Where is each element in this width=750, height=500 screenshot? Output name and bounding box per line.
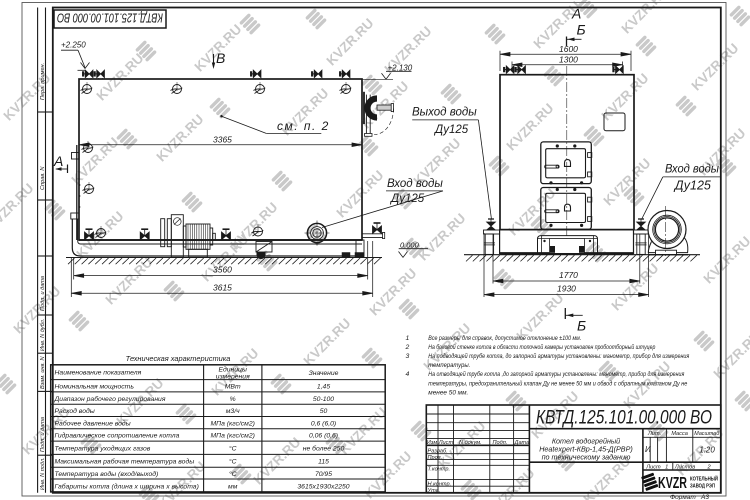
- svg-text:N докум.: N докум.: [459, 440, 482, 446]
- svg-text:Температура воды (вход/выход): Температура воды (вход/выход): [55, 470, 159, 478]
- svg-text:температуры, предохранительный: температуры, предохранительный клапан Ду…: [428, 379, 687, 387]
- svg-text:Масштаб: Масштаб: [694, 431, 720, 437]
- svg-text:Рабочее давление воды: Рабочее давление воды: [55, 419, 131, 427]
- svg-text:1770: 1770: [559, 270, 578, 280]
- svg-text:1:20: 1:20: [699, 446, 715, 455]
- svg-text:1300: 1300: [559, 55, 578, 65]
- svg-text:0,06 (0,6): 0,06 (0,6): [309, 433, 338, 440]
- svg-text:Ду125: Ду125: [389, 193, 425, 205]
- svg-text:менее 50 мм.: менее 50 мм.: [428, 390, 468, 397]
- svg-text:Максимальная рабочая температу: Максимальная рабочая температура воды: [55, 458, 195, 466]
- svg-text:Листов: Листов: [674, 464, 695, 470]
- svg-text:Изм.Лист: Изм.Лист: [427, 440, 454, 446]
- svg-text:КВТД.125.101.00.000 ВО: КВТД.125.101.00.000 ВО: [536, 408, 712, 429]
- svg-text:И: И: [645, 445, 651, 454]
- svg-text:Справ. N: Справ. N: [40, 166, 46, 190]
- svg-text:Б: Б: [577, 318, 586, 334]
- svg-text:Расход воды: Расход воды: [55, 407, 95, 415]
- svg-text:Габариты котла (длина х ширина: Габариты котла (длина х ширина х высота): [55, 483, 199, 491]
- svg-text:Инв. N подл.: Инв. N подл.: [40, 457, 46, 490]
- svg-text:На отводящей трубе котла ,до з: На отводящей трубе котла ,до запорной ар…: [428, 370, 684, 378]
- svg-text:Н.контр.: Н.контр.: [428, 481, 452, 487]
- svg-text:Вход воды: Вход воды: [387, 178, 443, 190]
- svg-text:1600: 1600: [559, 44, 578, 54]
- svg-text:Т.контр.: Т.контр.: [428, 467, 451, 473]
- svg-text:1: 1: [665, 464, 668, 470]
- svg-text:м3/ч: м3/ч: [226, 408, 240, 415]
- svg-text:Инв. N дубл.: Инв. N дубл.: [40, 319, 46, 351]
- svg-text:115: 115: [318, 459, 329, 466]
- svg-text:Масса: Масса: [671, 431, 688, 437]
- svg-text:Диапазон рабочего регулировани: Диапазон рабочего регулирования: [54, 395, 166, 403]
- svg-text:1930: 1930: [557, 284, 576, 294]
- svg-text:Дата: Дата: [514, 440, 530, 446]
- svg-text:Наименование показателя: Наименование показателя: [55, 370, 142, 377]
- svg-text:2: 2: [405, 344, 410, 351]
- svg-text:Разраб.: Разраб.: [428, 449, 448, 455]
- svg-text:Ду125: Ду125: [433, 124, 469, 136]
- svg-text:°С: °С: [229, 445, 237, 453]
- svg-text:4: 4: [406, 371, 410, 378]
- svg-text:Номинальная мощность: Номинальная мощность: [55, 384, 135, 391]
- svg-text:Подп. и дата: Подп. и дата: [40, 276, 46, 311]
- svg-text:0.000: 0.000: [400, 240, 420, 249]
- svg-text:Подп. и дата: Подп. и дата: [40, 417, 46, 452]
- svg-text:°С: °С: [229, 470, 237, 478]
- svg-text:Лист: Лист: [645, 464, 661, 470]
- svg-text:Ду125: Ду125: [673, 179, 711, 193]
- svg-text:+2.130: +2.130: [388, 63, 413, 72]
- svg-text:В: В: [216, 50, 225, 66]
- svg-text:50-100: 50-100: [313, 396, 334, 403]
- svg-text:не более 250: не более 250: [303, 445, 345, 453]
- svg-text:МПа (кгс/см2): МПа (кгс/см2): [210, 420, 254, 427]
- svg-text:Значение: Значение: [309, 370, 339, 377]
- svg-text:3365: 3365: [213, 134, 232, 144]
- svg-text:МВт: МВт: [225, 384, 241, 391]
- svg-text:0,6 (6,0): 0,6 (6,0): [311, 420, 336, 427]
- svg-text:Пров.: Пров.: [428, 455, 443, 461]
- svg-text:Формат: Формат: [670, 494, 696, 500]
- svg-text:Взам. инв. N: Взам. инв. N: [40, 355, 46, 389]
- svg-text:Перв. примен.: Перв. примен.: [40, 63, 46, 100]
- svg-text:Вход воды: Вход воды: [665, 163, 720, 175]
- svg-text:Лит.: Лит.: [647, 431, 661, 437]
- svg-text:см. п. 2: см. п. 2: [277, 119, 330, 133]
- svg-text:KVZR: KVZR: [658, 475, 687, 492]
- svg-text:Гидравлическое сопротивление к: Гидравлическое сопротивление котла: [55, 432, 180, 440]
- svg-text:Выход воды: Выход воды: [412, 107, 477, 119]
- svg-text:измерения: измерения: [216, 373, 250, 380]
- svg-text:КОТЕЛЬНЫЙ: КОТЕЛЬНЫЙ: [690, 475, 718, 483]
- svg-text:А: А: [53, 153, 63, 169]
- svg-text:температуры.: температуры.: [428, 362, 470, 369]
- svg-text:1: 1: [406, 335, 410, 342]
- svg-text:КВТД.125.101.00.000 ВО: КВТД.125.101.00.000 ВО: [57, 11, 163, 25]
- svg-text:На подводящей трубе котла, д: На подводящей трубе котла, до запорной а…: [428, 352, 689, 360]
- svg-text:Б: Б: [577, 22, 586, 38]
- svg-text:3560: 3560: [213, 265, 232, 275]
- svg-text:°С: °С: [229, 458, 237, 466]
- svg-text:3615: 3615: [213, 282, 232, 292]
- svg-text:А3: А3: [700, 494, 709, 500]
- svg-text:А: А: [571, 6, 581, 22]
- svg-text:Утв.: Утв.: [427, 488, 441, 494]
- svg-text:МПа (кгс/см2): МПа (кгс/см2): [210, 433, 254, 440]
- svg-text:На боковой стенке котла в обла: На боковой стенке котла в области топочн…: [428, 343, 655, 351]
- svg-text:3: 3: [406, 353, 410, 360]
- svg-text:70/95: 70/95: [315, 471, 332, 478]
- svg-text:1,45: 1,45: [317, 384, 330, 391]
- svg-text:50: 50: [320, 408, 328, 415]
- svg-text:Все размеры для справок, допус: Все размеры для справок, допустимое откл…: [428, 334, 581, 342]
- svg-text:Температура уходящих газов: Температура уходящих газов: [55, 445, 151, 453]
- svg-text:Техническая характеристика: Техническая характеристика: [126, 354, 231, 363]
- svg-text:ЗАВОД РЭП: ЗАВОД РЭП: [690, 484, 715, 490]
- svg-text:+2.250: +2.250: [61, 41, 86, 50]
- svg-text:%: %: [230, 396, 236, 403]
- svg-text:по техническому заданию: по техническому заданию: [542, 453, 631, 462]
- svg-text:мм: мм: [228, 484, 238, 491]
- svg-text:Единицы: Единицы: [218, 366, 246, 374]
- svg-text:3615х1930х2250: 3615х1930х2250: [297, 484, 349, 491]
- svg-text:Подп.: Подп.: [493, 440, 508, 446]
